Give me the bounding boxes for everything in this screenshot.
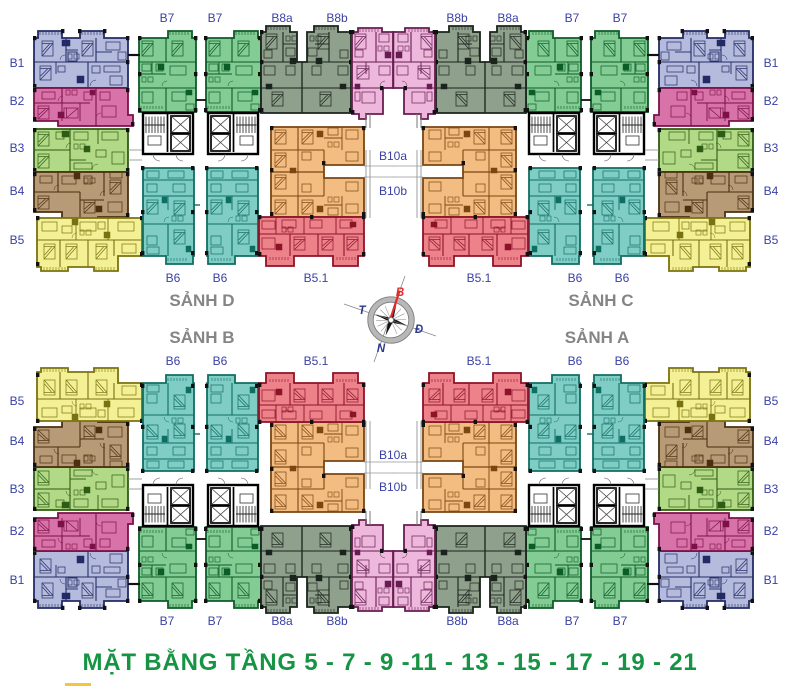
svg-text:B8a: B8a <box>497 614 519 628</box>
svg-text:B8b: B8b <box>326 614 348 628</box>
svg-text:B5: B5 <box>10 394 25 408</box>
svg-text:B6: B6 <box>615 354 630 368</box>
svg-text:B5: B5 <box>764 233 779 247</box>
svg-text:SẢNH D: SẢNH D <box>169 291 234 310</box>
svg-text:B: B <box>396 287 404 299</box>
svg-text:B3: B3 <box>10 482 25 496</box>
svg-text:B7: B7 <box>208 614 223 628</box>
svg-text:B2: B2 <box>764 524 779 538</box>
svg-text:B3: B3 <box>10 141 25 155</box>
svg-text:B7: B7 <box>565 11 580 25</box>
svg-text:B6: B6 <box>213 271 228 285</box>
svg-text:B5.1: B5.1 <box>304 271 329 285</box>
svg-text:B2: B2 <box>10 524 25 538</box>
svg-text:B4: B4 <box>764 434 779 448</box>
svg-text:B8b: B8b <box>446 614 468 628</box>
svg-text:B5: B5 <box>10 233 25 247</box>
svg-text:B6: B6 <box>568 354 583 368</box>
svg-text:B3: B3 <box>764 482 779 496</box>
svg-text:B6: B6 <box>615 271 630 285</box>
svg-text:B8a: B8a <box>497 11 519 25</box>
svg-text:B4: B4 <box>764 184 779 198</box>
svg-text:B8a: B8a <box>271 614 293 628</box>
svg-text:B8b: B8b <box>446 11 468 25</box>
svg-text:B7: B7 <box>613 614 628 628</box>
svg-text:B7: B7 <box>208 11 223 25</box>
svg-text:B1: B1 <box>764 573 779 587</box>
svg-text:B1: B1 <box>10 56 25 70</box>
svg-text:MẶT BẰNG TẦNG 5 - 7 - 9 -11 -: MẶT BẰNG TẦNG 5 - 7 - 9 -11 - 13 - 15 - … <box>82 648 697 676</box>
svg-text:B6: B6 <box>213 354 228 368</box>
svg-text:B3: B3 <box>764 141 779 155</box>
svg-text:B6: B6 <box>166 354 181 368</box>
svg-text:SẢNH B: SẢNH B <box>169 328 234 347</box>
svg-text:B2: B2 <box>764 94 779 108</box>
svg-text:SẢNH C: SẢNH C <box>568 291 633 310</box>
svg-text:B7: B7 <box>160 11 175 25</box>
svg-text:B6: B6 <box>568 271 583 285</box>
svg-text:B10b: B10b <box>379 184 407 198</box>
svg-text:B8a: B8a <box>271 11 293 25</box>
svg-text:B5.1: B5.1 <box>304 354 329 368</box>
svg-text:B5: B5 <box>764 394 779 408</box>
svg-text:B5.1: B5.1 <box>467 354 492 368</box>
svg-text:SẢNH A: SẢNH A <box>565 328 630 347</box>
svg-text:B7: B7 <box>160 614 175 628</box>
svg-text:Đ: Đ <box>415 324 423 336</box>
svg-text:B1: B1 <box>10 573 25 587</box>
svg-text:B5.1: B5.1 <box>467 271 492 285</box>
svg-text:T: T <box>358 305 366 317</box>
svg-text:B4: B4 <box>10 434 25 448</box>
svg-text:B10a: B10a <box>379 149 407 163</box>
svg-text:B10b: B10b <box>379 480 407 494</box>
svg-text:B2: B2 <box>10 94 25 108</box>
svg-text:B8b: B8b <box>326 11 348 25</box>
svg-text:B7: B7 <box>565 614 580 628</box>
svg-text:B4: B4 <box>10 184 25 198</box>
svg-text:B7: B7 <box>613 11 628 25</box>
svg-text:B10a: B10a <box>379 448 407 462</box>
svg-text:N: N <box>377 343 386 355</box>
svg-text:B1: B1 <box>764 56 779 70</box>
svg-text:B6: B6 <box>166 271 181 285</box>
